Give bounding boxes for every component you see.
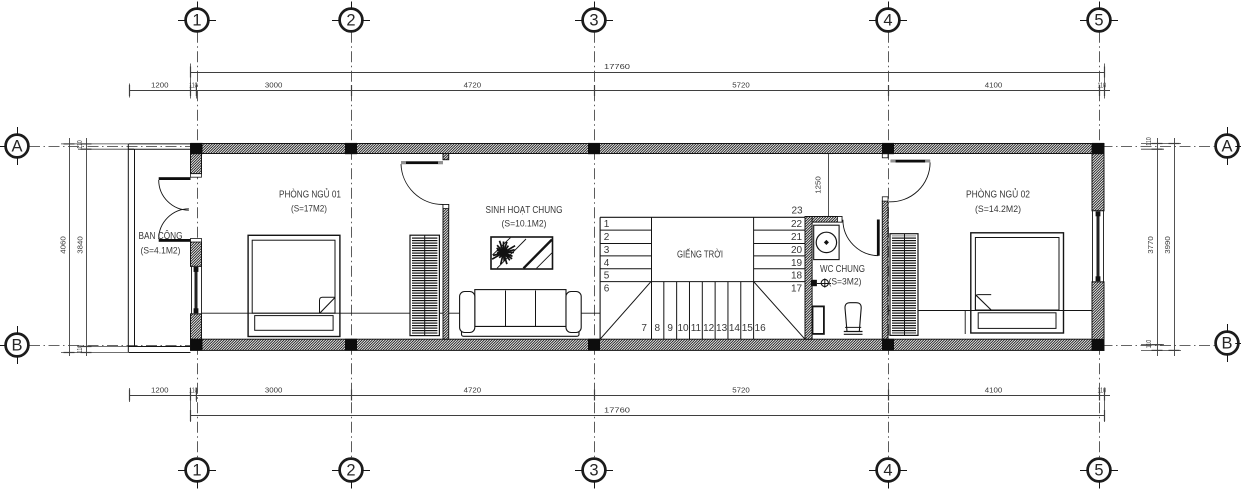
svg-text:(S=10.1M2): (S=10.1M2) xyxy=(502,219,547,229)
svg-text:3: 3 xyxy=(589,462,598,480)
svg-text:15: 15 xyxy=(742,323,754,334)
svg-text:(S=4.1M2): (S=4.1M2) xyxy=(141,245,181,255)
svg-text:21: 21 xyxy=(791,232,803,243)
svg-text:1200: 1200 xyxy=(151,81,169,90)
svg-text:110: 110 xyxy=(1144,137,1153,146)
svg-text:1200: 1200 xyxy=(151,385,169,394)
svg-text:SINH HOẠT CHUNG: SINH HOẠT CHUNG xyxy=(486,205,563,216)
svg-text:2: 2 xyxy=(604,232,610,243)
svg-text:1250: 1250 xyxy=(814,176,823,194)
svg-text:110: 110 xyxy=(1098,81,1107,90)
svg-text:14: 14 xyxy=(729,323,741,334)
svg-text:3770: 3770 xyxy=(1146,236,1155,254)
svg-text:3: 3 xyxy=(589,12,598,30)
svg-text:1: 1 xyxy=(604,219,610,230)
svg-text:5720: 5720 xyxy=(732,81,750,90)
svg-text:GIẾNG TRỜI: GIẾNG TRỜI xyxy=(677,248,723,261)
svg-text:4720: 4720 xyxy=(464,81,482,90)
svg-text:13: 13 xyxy=(716,323,728,334)
svg-text:4100: 4100 xyxy=(985,81,1003,90)
svg-text:8: 8 xyxy=(655,323,661,334)
svg-text:(S=3M2): (S=3M2) xyxy=(829,277,862,287)
svg-text:3: 3 xyxy=(604,245,610,256)
svg-text:110: 110 xyxy=(75,345,84,354)
svg-text:A: A xyxy=(1221,138,1232,156)
svg-text:17: 17 xyxy=(791,284,803,295)
svg-text:110: 110 xyxy=(1098,385,1107,394)
svg-text:7: 7 xyxy=(641,323,647,334)
svg-text:B: B xyxy=(1221,335,1232,353)
svg-text:B: B xyxy=(11,337,22,355)
svg-text:110: 110 xyxy=(1144,340,1153,349)
svg-text:(S=14.2M2): (S=14.2M2) xyxy=(975,204,1021,214)
svg-text:20: 20 xyxy=(791,245,803,256)
svg-text:4060: 4060 xyxy=(58,236,67,254)
svg-text:12: 12 xyxy=(703,323,715,334)
svg-text:110: 110 xyxy=(189,385,198,394)
svg-text:16: 16 xyxy=(755,323,767,334)
svg-text:1: 1 xyxy=(192,462,201,480)
svg-text:2: 2 xyxy=(346,12,355,30)
svg-text:4720: 4720 xyxy=(464,385,482,394)
svg-text:22: 22 xyxy=(791,219,803,230)
svg-text:WC CHUNG: WC CHUNG xyxy=(820,264,865,275)
svg-text:4: 4 xyxy=(883,462,892,480)
svg-text:3990: 3990 xyxy=(1163,236,1172,254)
svg-text:1: 1 xyxy=(192,12,201,30)
svg-text:PHÒNG NGỦ 02: PHÒNG NGỦ 02 xyxy=(966,187,1030,200)
svg-text:10: 10 xyxy=(677,323,689,334)
svg-text:19: 19 xyxy=(791,258,803,269)
svg-text:A: A xyxy=(11,138,22,156)
svg-text:6: 6 xyxy=(604,284,610,295)
svg-text:23: 23 xyxy=(791,206,803,217)
svg-text:5: 5 xyxy=(604,271,610,282)
svg-text:11: 11 xyxy=(691,323,702,334)
svg-text:3000: 3000 xyxy=(265,385,283,394)
svg-text:(S=17M2): (S=17M2) xyxy=(291,203,327,213)
svg-text:5720: 5720 xyxy=(732,385,750,394)
svg-text:4: 4 xyxy=(883,12,892,30)
svg-text:3840: 3840 xyxy=(76,236,85,254)
svg-text:2: 2 xyxy=(346,462,355,480)
svg-text:17760: 17760 xyxy=(604,406,630,415)
svg-text:18: 18 xyxy=(791,271,803,282)
svg-text:4: 4 xyxy=(604,258,610,269)
svg-text:4100: 4100 xyxy=(985,385,1003,394)
svg-text:5: 5 xyxy=(1094,462,1103,480)
svg-text:3000: 3000 xyxy=(265,81,283,90)
svg-text:17760: 17760 xyxy=(604,62,630,71)
svg-text:PHÒNG NGỦ 01: PHÒNG NGỦ 01 xyxy=(279,187,341,200)
svg-text:110: 110 xyxy=(75,140,84,149)
svg-text:BAN CÔNG: BAN CÔNG xyxy=(139,229,183,242)
svg-text:9: 9 xyxy=(667,323,673,334)
svg-text:110: 110 xyxy=(189,81,198,90)
svg-text:5: 5 xyxy=(1094,12,1103,30)
